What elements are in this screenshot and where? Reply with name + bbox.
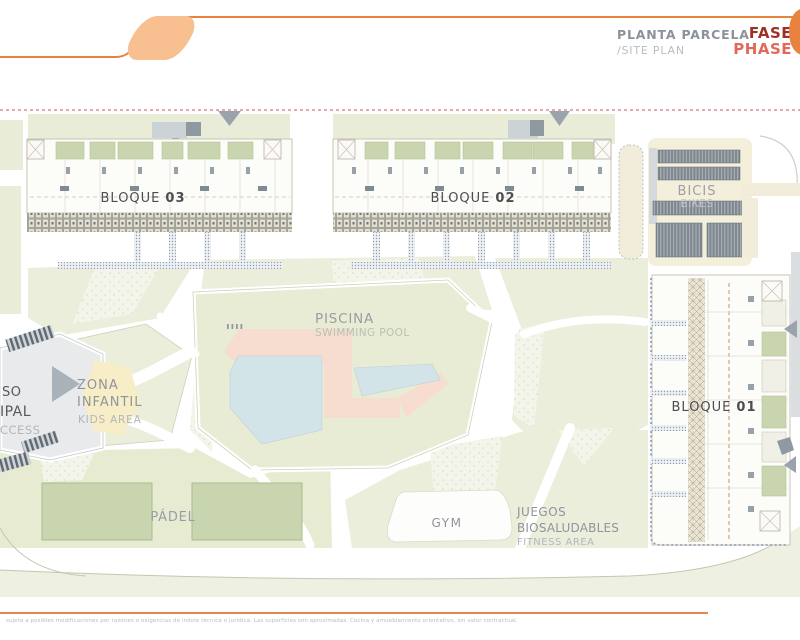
phase-label: FASE PHASE xyxy=(706,25,792,57)
access-label-fragment-1: SO xyxy=(2,385,21,400)
fitness-label-es-1: JUEGOS xyxy=(516,505,566,519)
footer-disclaimer: sujeta a posibles modificaciones por raz… xyxy=(6,618,796,624)
bloque-03-building xyxy=(27,122,292,232)
bloque-02-pergola-parking xyxy=(333,213,611,232)
phase-label-en: PHASE xyxy=(706,41,792,57)
kids-label-es-1: ZONA xyxy=(77,378,119,393)
brand-logo-icon xyxy=(128,16,195,60)
phase-label-es: FASE xyxy=(706,25,792,41)
pool-platform xyxy=(193,280,492,470)
bloque-03-pergola-parking xyxy=(27,213,292,232)
padel-court-1 xyxy=(42,483,152,540)
bloque-02-label: BLOQUE02 xyxy=(431,191,516,206)
pool-label-es: PISCINA xyxy=(315,311,374,327)
bloque-02-roof-gardens xyxy=(365,142,595,159)
fitness-label-en: FITNESS AREA xyxy=(517,537,594,548)
kids-label-es-2: INFANTIL xyxy=(77,395,142,410)
fitness-label-es-2: BIOSALUDABLES xyxy=(517,521,619,535)
bloque-01-label: BLOQUE01 xyxy=(672,400,757,415)
kids-label-en: KIDS AREA xyxy=(78,414,142,426)
padel-court-2 xyxy=(192,483,302,540)
phase-number: 0 xyxy=(786,2,800,66)
site-plan-page: PLANTA PARCELA /SITE PLAN FASE PHASE 0 xyxy=(0,0,800,640)
bikes-label-es: BICIS xyxy=(678,184,717,199)
site-plan-drawing: BLOQUE03 BLOQUE02 BLOQUE01 BICIS BIKES P… xyxy=(0,100,800,612)
access-label-fragment-2: IPAL xyxy=(0,404,31,420)
padel-label: PÁDEL xyxy=(150,509,195,525)
bloque-03-label: BLOQUE03 xyxy=(101,191,186,206)
footer-accent-line xyxy=(0,612,708,614)
access-label-fragment-3: CCESS xyxy=(0,423,40,437)
pool-label-en: SWIMMING POOL xyxy=(315,327,410,339)
gym-label: GYM xyxy=(432,516,463,530)
bikes-label-en: BIKES xyxy=(681,198,714,210)
